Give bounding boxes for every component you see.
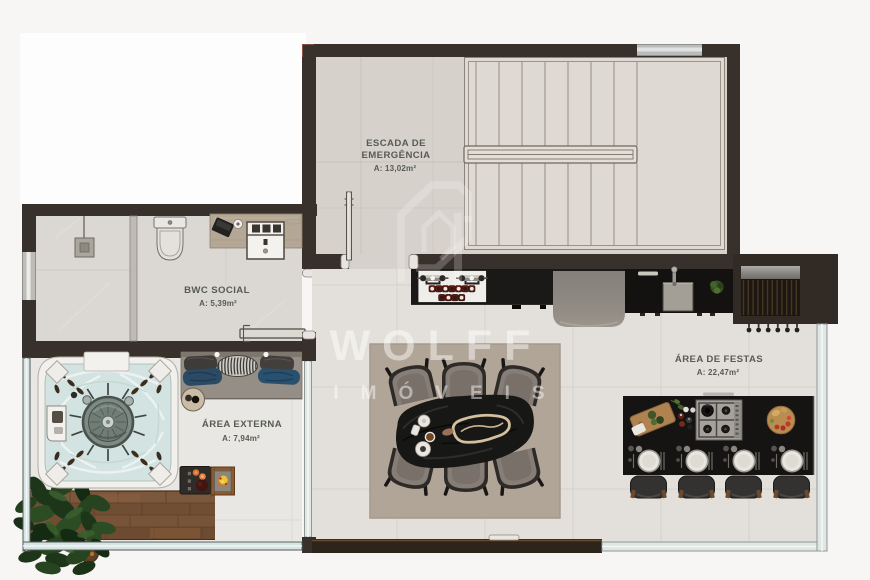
svg-text:EMERGÊNCIA: EMERGÊNCIA [361,149,430,161]
svg-text:A: 7,94m²: A: 7,94m² [222,434,260,443]
svg-text:WOLFF: WOLFF [330,322,543,370]
svg-text:IMÓVEIS: IMÓVEIS [333,382,566,404]
svg-text:A: 13,02m²: A: 13,02m² [374,164,417,173]
svg-text:ÁREA DE FESTAS: ÁREA DE FESTAS [675,353,763,365]
svg-text:A: 22,47m²: A: 22,47m² [697,368,740,377]
svg-text:BWC SOCIAL: BWC SOCIAL [184,285,250,296]
svg-text:ÁREA EXTERNA: ÁREA EXTERNA [202,418,282,430]
svg-text:ESCADA DE: ESCADA DE [366,138,426,149]
svg-text:A: 5,39m²: A: 5,39m² [199,299,237,308]
